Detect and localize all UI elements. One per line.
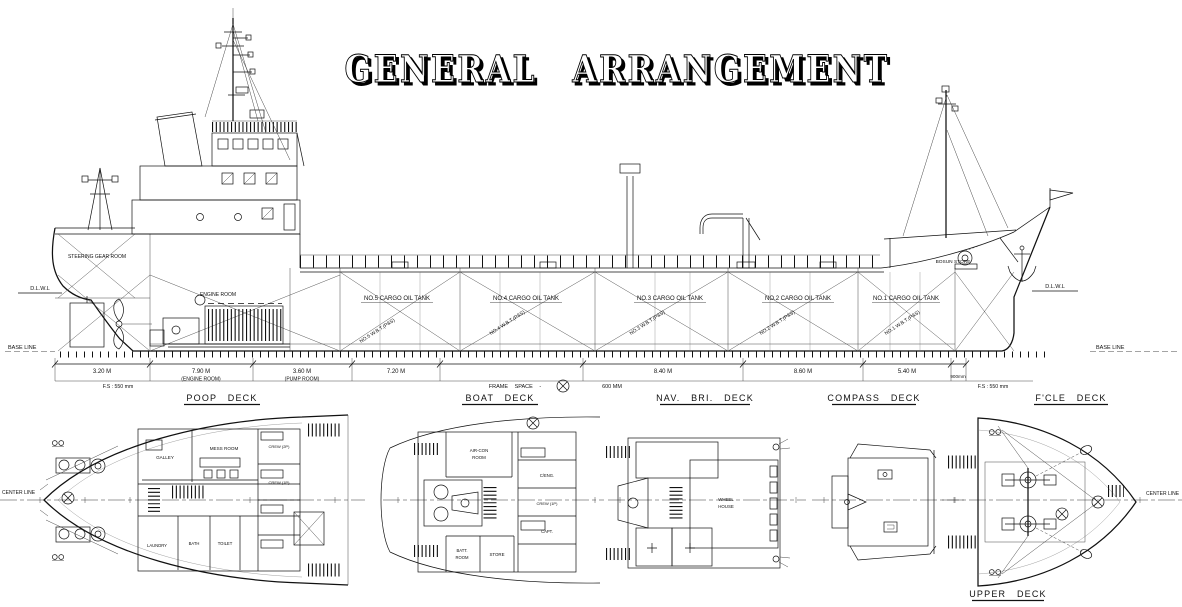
poop-hatch-x [294,512,324,545]
bollard-pair [989,430,1001,436]
mooring-winch-port [56,458,105,473]
center-line-label-right: CENTER LINE [1146,491,1180,497]
nav-bottom-room-1 [636,528,672,566]
searchlight [884,522,897,532]
poop-fairlead-symbol [62,492,74,504]
fore-light [936,98,942,103]
crew-2p-label: CREW (2P) [269,444,291,449]
dim-3-20: 3.20 M [93,369,111,375]
crew-1p-label: CREW (1P) [269,480,291,485]
tank5-label: NO.5 CARGO OIL TANK [364,296,430,302]
center-line-label-left: CENTER LINE [2,490,36,496]
window-glyph [262,208,273,219]
steering-gear-room-label: STEERING GEAR ROOM [68,254,126,260]
boat-crew-1p-label: CREW (1P) [537,501,559,506]
capstan-symbol [1056,508,1068,520]
mooring-lines [40,446,118,554]
wbt5-label: NO.5 W.B.T.(P&S) [359,317,397,344]
door [284,204,295,230]
baseline-fwd-label: BASE LINE [1096,345,1125,351]
nav-light [216,43,221,48]
dim-8-40: 8.40 M [654,369,672,375]
vent-head [620,164,640,173]
nav-vent-glyphs [647,543,695,553]
tank1-label: NO.1 CARGO OIL TANK [873,296,939,302]
compass-deck-label: COMPASS DECK [827,393,920,403]
bridge-window [218,139,228,149]
aircon-room-label-1: AIR-CON [470,448,489,453]
window-glyphs [222,173,277,184]
boat-deck-plan: AIR-CON ROOM BATT. ROOM STORE C/ENG. CRE… [381,417,604,583]
wbt4-label: NO.4 W.B.T.(P&S) [489,309,527,336]
nav-light [248,52,253,57]
mess-chair [217,470,225,478]
exhaust-opening [434,485,448,499]
magnetic-compass [878,470,892,479]
stern-light [112,176,118,182]
dlwl-fwd-label: D.L.W.L [1045,284,1065,290]
compass-deck-outline [848,458,928,546]
laundry-label: LAUNDRY [147,543,167,548]
tank3-label: NO.3 CARGO OIL TANK [637,296,703,302]
nav-light [246,35,251,40]
drawing-title: GENERAL ARRANGEMENT GENERAL ARRANGEMENT [345,47,893,94]
stern-gear [70,296,152,349]
upper-deck-label: UPPER DECK [969,589,1047,599]
nav-deck-outline [628,438,780,568]
compass-mast-plan [848,494,866,510]
mess-chair [204,470,212,478]
aux-flywheel [172,326,180,334]
searchlight-glyph [887,525,894,529]
dimension-lines: 3.20 M 7.90 M (ENGINE ROOM) 3.60 M (PUMP… [52,358,1033,392]
boat-vent-symbol [527,417,539,429]
poop-deck-plan: CENTER LINE GALLEY MESS ROOM LAUNDRY BAT… [0,415,365,585]
mast-yards [222,32,252,95]
dim-900mm: 900mm [950,374,965,379]
bridge-window [263,139,273,149]
bridge-window [233,139,243,149]
fore-light [952,106,958,111]
anchor-chains-plan [1036,452,1082,552]
galley-label: GALLEY [156,455,174,460]
wheelhouse-plan [690,460,778,548]
baseline-aft-label: BASE LINE [8,345,37,351]
batt-room-label-1: BATT. [456,548,467,553]
bunk [521,448,545,457]
engine-room: ENGINE ROOM [150,292,290,347]
wbt2-label: NO.2 W.B.T.(P&S) [759,309,797,336]
midship-fittings [392,164,836,268]
hull-outline [52,207,1050,351]
mess-chair [230,470,238,478]
tank4-label: NO.4 CARGO OIL TANK [493,296,559,302]
wheelhouse-label-2: HOUSE [718,504,734,509]
boat-deck-label: BOAT DECK [466,393,535,403]
dim-3-60: 3.60 M [293,369,311,375]
fcle-hull-outline [978,418,1136,586]
nav-bottom-room-2 [672,528,712,566]
frame-space-aft-label: F.S : 550 mm [103,384,134,390]
funnel [155,112,202,166]
ga-drawing: GENERAL ARRANGEMENT GENERAL ARRANGEMENT [0,0,1182,607]
fcle-deck-label: F'CLE DECK [1035,393,1106,403]
windlass-plan [1002,468,1056,536]
tank-labels: NO.5 CARGO OIL TANK NO.4 CARGO OIL TANK … [359,296,940,345]
bulkheads [55,234,955,351]
bunk [261,540,283,548]
poop-deck-label: POOP DECK [186,393,257,403]
bunk [261,470,283,478]
mess-room-label: MESS ROOM [210,446,239,451]
general-arrangement-sheet: GENERAL ARRANGEMENT GENERAL ARRANGEMENT [0,0,1182,607]
dim-5-40: 5.40 M [898,369,916,375]
frame-space-label: FRAME SPACE - [489,384,542,390]
bollard-pair [989,570,1001,576]
rudder [70,303,104,347]
nav-light [250,69,255,74]
porthole [235,214,242,221]
engine-bed [168,344,290,347]
foremast-stays-plan [998,426,1098,578]
mooring-winch-stbd [56,527,105,542]
main-mast [205,8,290,160]
prop-hub [116,321,122,327]
fcle-deck-plan: CENTER LINE [942,418,1182,586]
bunk [261,432,283,440]
compass-deck-wings [850,444,936,560]
aircon-room-label-2: ROOM [472,455,486,460]
bollard-pair [52,555,64,561]
radar-unit [236,87,248,93]
bow-area: BOSUN STORE [903,86,1073,282]
wheelhouse-front-windows [770,466,777,541]
frame-space-symbol [557,380,569,392]
frame-space-value: 600 MM [602,384,622,390]
poop-deckhouse [132,200,300,234]
title-text: GENERAL ARRANGEMENT [345,47,890,91]
crane-brace [746,218,760,240]
bridge-window [248,139,258,149]
wbt1-label: NO.1 W.B.T.(P&S) [884,309,922,336]
compass-deck-plan [812,444,966,560]
store-label: STORE [489,552,504,557]
compass-dot [883,473,887,477]
funnel-casing [424,480,482,526]
nav-corner-light-top [773,439,790,450]
aft-mast [82,168,118,230]
nav-bri-deck-plan: WHEEL HOUSE [606,438,806,568]
nav-bri-deck-label: NAV. BRI. DECK [656,393,754,403]
deck-hatch [392,262,408,268]
crane-base [737,262,755,268]
hose-crane [700,214,749,268]
vent-mast [627,176,633,268]
bollard-pair [52,441,64,447]
chief-engineer-label: C/ENG. [540,473,554,478]
funnel-uptake [452,492,478,514]
boat-deckhouse [140,166,297,200]
superstructure [132,110,304,234]
dlwl-aft-label: D.L.W.L [30,286,50,292]
engine-room-label: ENGINE ROOM [200,292,236,298]
tank2-label: NO.2 CARGO OIL TANK [765,296,831,302]
hawse-pipe [1000,238,1018,262]
dim-pump-room-note: (PUMP ROOM) [285,377,320,383]
toilet-label: TOILET [218,541,233,546]
funnel-top-plan [618,478,648,528]
porthole [197,214,204,221]
wbt3-label: NO.3 W.B.T.(P&S) [629,309,667,336]
bow-flag [1050,190,1073,200]
frame-space-fwd-label: F.S : 550 mm [978,384,1009,390]
wheelhouse-profile [212,133,297,166]
deck-plan-labels: POOP DECK BOAT DECK NAV. BRI. DECK COMPA… [184,393,1108,601]
batt-room-label-2: ROOM [455,555,469,560]
foremast-stays [903,95,1008,236]
fcle-house-below [985,462,1085,542]
fcle-bulwark-inner [978,430,1120,574]
funnel-top-pipe [628,498,638,508]
dim-7-90: 7.90 M [192,369,210,375]
mess-table [200,458,240,467]
stern-light [82,176,88,182]
aux-engine [163,318,199,344]
bridge-front [297,133,304,166]
wheelhouse-label-1: WHEEL [718,497,734,502]
dim-8-60: 8.60 M [794,369,812,375]
frame-lines [380,272,920,351]
bath-label: BATH [189,541,200,546]
bridge-window [278,139,288,149]
bunk [261,505,283,513]
compass-side-platform [832,476,848,528]
nav-corner-light-bottom [773,556,790,567]
dim-7-20: 7.20 M [387,369,405,375]
dim-engine-room-note: (ENGINE ROOM) [181,377,221,383]
exhaust-opening [434,507,448,521]
generator [150,330,164,346]
